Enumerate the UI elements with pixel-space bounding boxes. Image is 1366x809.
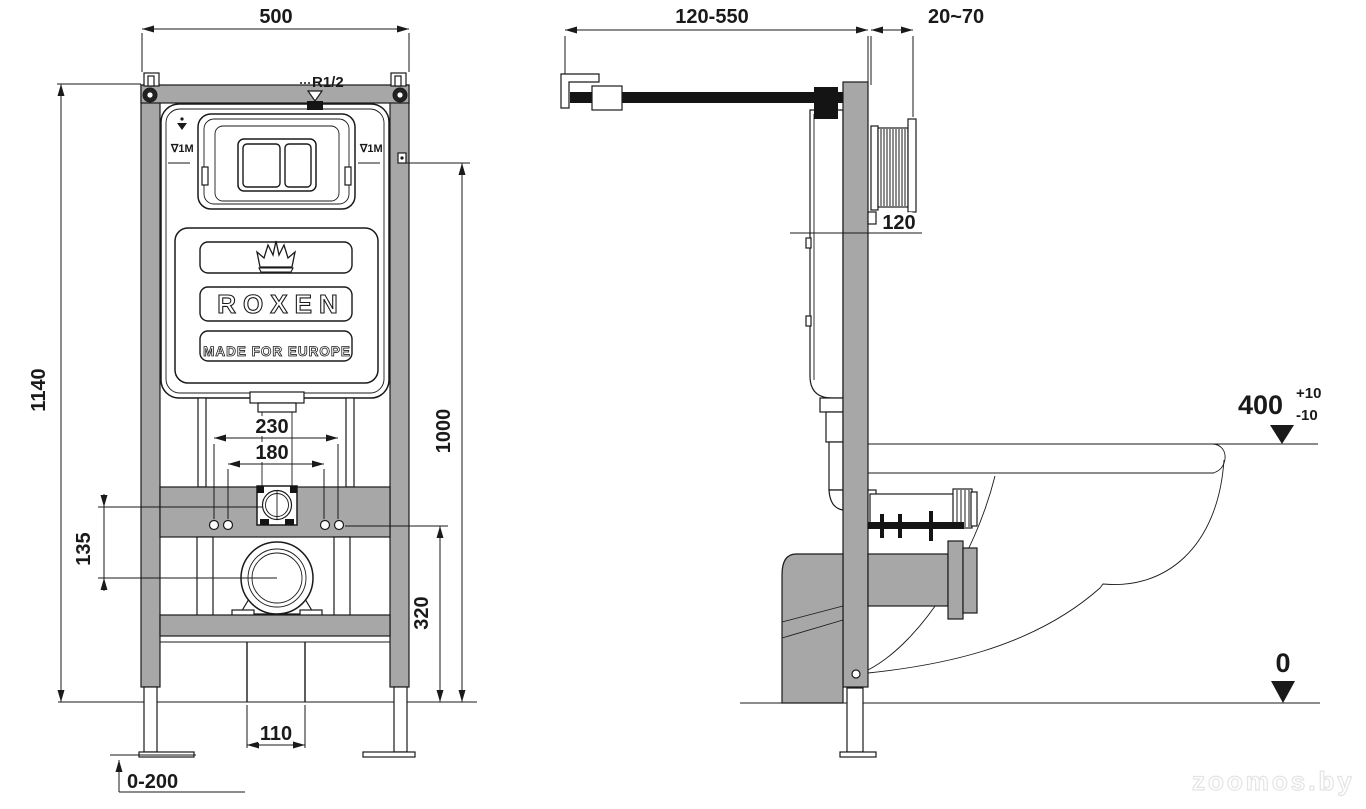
dim-leg-adjust: 0-200 xyxy=(110,755,245,793)
crown-base xyxy=(259,268,293,272)
screw-right xyxy=(393,88,407,102)
supply-valve xyxy=(814,87,838,119)
dim-depth-label: 120 xyxy=(882,212,915,234)
strut-lower-left xyxy=(197,537,213,616)
brand-name: ROXEN xyxy=(217,289,344,319)
dim-180-label: 180 xyxy=(255,442,288,464)
dim-pipe-label: 120-550 xyxy=(675,6,748,28)
rail-clamp-icon xyxy=(398,153,406,163)
cistern-side xyxy=(806,110,843,510)
dim-1140: 1140 xyxy=(28,84,141,702)
water-supply-pipe xyxy=(561,74,845,119)
dim-110-label: 110 xyxy=(260,723,292,745)
rim-datum-triangle xyxy=(1270,425,1294,444)
shaft-flange xyxy=(908,119,916,212)
crossbar-lower xyxy=(160,615,390,636)
dim-pipe-range: 120-550 xyxy=(565,6,868,82)
wall-bracket-left xyxy=(144,73,159,86)
rail-hole xyxy=(852,670,860,678)
frame-rail-left xyxy=(141,85,160,687)
dim-320-label: 320 xyxy=(411,596,433,629)
inlet-valve xyxy=(307,101,323,110)
rim-minus-label: -10 xyxy=(1296,407,1318,424)
flush-buttons-plate xyxy=(238,139,316,191)
frame-rail-right xyxy=(390,85,409,687)
dim-110: 110 xyxy=(247,705,305,748)
strut-lower-right xyxy=(334,537,350,616)
supply-coupling xyxy=(592,86,622,110)
level-left-label: ∇1M xyxy=(170,143,194,155)
leg-side xyxy=(840,688,876,757)
drain-elbow xyxy=(782,554,843,703)
dim-leg-label: 0-200 xyxy=(127,771,178,793)
flush-pipe-fitting xyxy=(257,486,297,525)
dim-wall-label: 20~70 xyxy=(928,6,984,28)
flush-pipe-step xyxy=(820,398,843,412)
technical-drawing: ∇1M ∇1M R1/2 ROXEN MADE FOR xyxy=(0,0,1366,809)
floor-datum: 0 xyxy=(1271,648,1295,703)
strut-upper-right xyxy=(346,398,354,487)
leg-left xyxy=(139,687,194,757)
dim-1140-label: 1140 xyxy=(28,368,50,411)
drain-connector xyxy=(868,541,977,619)
leg-right xyxy=(363,687,415,757)
frame-top-bar xyxy=(141,85,409,103)
rim-height-datum: 400 +10 -10 xyxy=(1238,385,1321,444)
flush-plate xyxy=(198,114,355,209)
access-shaft xyxy=(868,119,916,224)
dim-500: 500 xyxy=(142,6,409,72)
dim-135: 135 xyxy=(73,494,104,591)
level-right-label: ∇1M xyxy=(359,143,383,155)
drawing-svg: ∇1M ∇1M R1/2 ROXEN MADE FOR xyxy=(0,0,1366,809)
roxen-logo-panel: ROXEN MADE FOR EUROPE xyxy=(175,228,378,383)
side-view: 120-550 20~70 120 400 +10 -10 0 xyxy=(561,6,1321,757)
dim-1000-label: 1000 xyxy=(433,409,455,454)
frame-rail-side xyxy=(843,82,868,687)
floor-zero-label: 0 xyxy=(1275,648,1290,678)
plate-notch-right xyxy=(345,167,351,185)
wall-bracket-right xyxy=(391,73,406,86)
front-view: ∇1M ∇1M R1/2 ROXEN MADE FOR xyxy=(28,6,477,793)
plate-notch-left xyxy=(202,167,208,185)
dim-135-label: 135 xyxy=(73,532,95,565)
screw-left xyxy=(143,88,157,102)
strut-upper-left xyxy=(198,398,206,487)
watermark: zoomos.by xyxy=(1192,766,1355,796)
brand-tagline: MADE FOR EUROPE xyxy=(203,344,351,359)
r12-label: R1/2 xyxy=(312,74,344,91)
dim-230-label: 230 xyxy=(255,416,288,438)
dim-wall-range: 20~70 xyxy=(871,6,984,117)
rim-plus-label: +10 xyxy=(1296,385,1321,402)
rim-value-label: 400 xyxy=(1238,390,1283,420)
flush-bend-pipe xyxy=(250,392,304,489)
dim-500-label: 500 xyxy=(259,6,292,28)
drain-pipe-front xyxy=(247,642,305,702)
floor-datum-triangle xyxy=(1271,681,1295,703)
